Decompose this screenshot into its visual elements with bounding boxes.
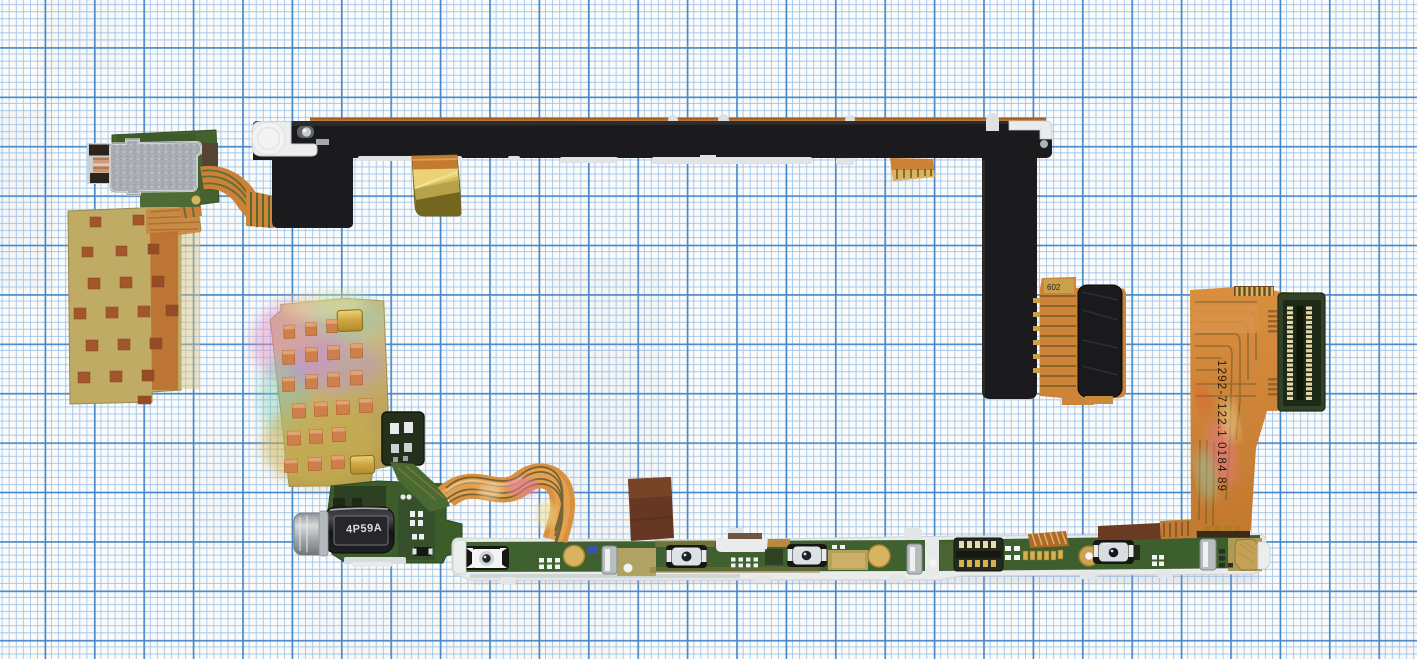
svg-text:4P59A: 4P59A [346, 522, 383, 536]
svg-text:1292-7122.1 0184 89: 1292-7122.1 0184 89 [1215, 360, 1227, 492]
svg-text:602: 602 [1047, 283, 1061, 292]
